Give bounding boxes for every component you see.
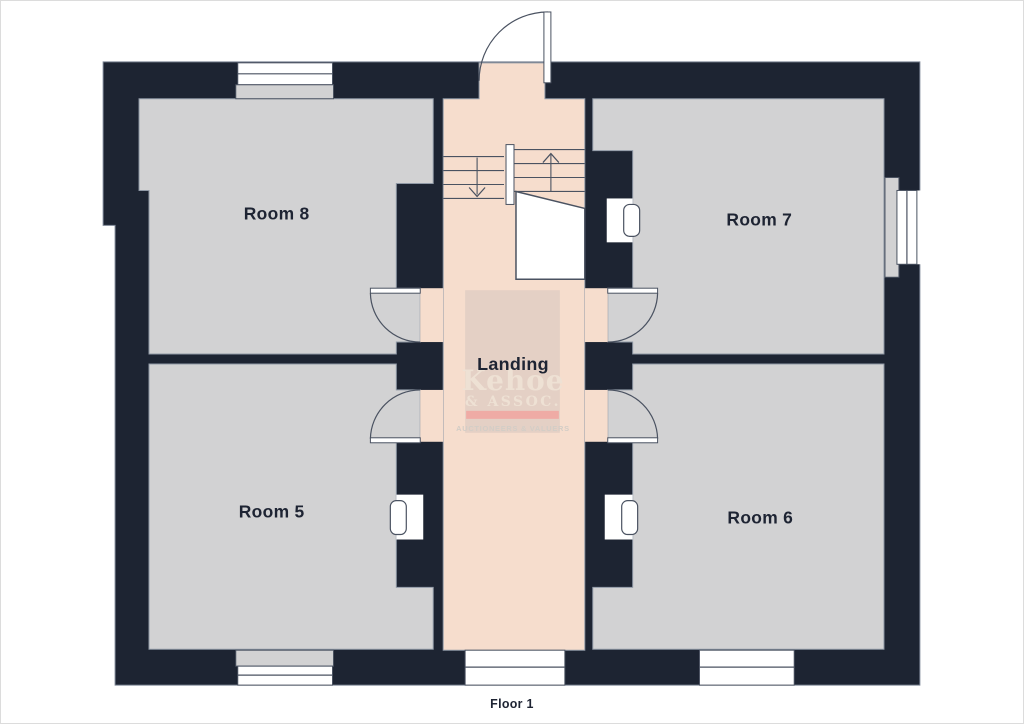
recess-room-7 xyxy=(607,198,640,242)
window-bottom-left xyxy=(236,650,334,685)
room-8-floor xyxy=(139,99,433,354)
floor-plan-canvas: Kehoe & ASSOC. AUCTIONEERS & VALUERS Roo… xyxy=(0,0,1024,724)
room-5-label: Room 5 xyxy=(239,502,305,522)
window-right xyxy=(885,178,930,278)
landing-label: Landing xyxy=(477,354,549,374)
doorway-room-6 xyxy=(585,390,608,442)
floor-plan-drawing: Kehoe & ASSOC. AUCTIONEERS & VALUERS Roo… xyxy=(1,1,1023,723)
doorway-room-8 xyxy=(420,288,443,342)
watermark-suffix: & ASSOC. xyxy=(465,394,561,410)
stair-handrail xyxy=(506,145,514,205)
room-8-label: Room 8 xyxy=(244,203,310,223)
window-bottom-center xyxy=(465,650,565,685)
recess-room-6 xyxy=(605,495,638,540)
watermark-tagline: AUCTIONEERS & VALUERS xyxy=(456,424,570,433)
doorway-room-7 xyxy=(585,288,608,342)
window-bottom-right xyxy=(699,650,794,685)
watermark-bar xyxy=(466,411,559,419)
recess-room-5 xyxy=(390,495,423,540)
doorway-room-5 xyxy=(420,390,443,442)
floor-title: Floor 1 xyxy=(490,697,534,711)
room-7-label: Room 7 xyxy=(726,209,792,229)
room-6-label: Room 6 xyxy=(727,508,793,528)
window-top-left xyxy=(236,63,334,99)
